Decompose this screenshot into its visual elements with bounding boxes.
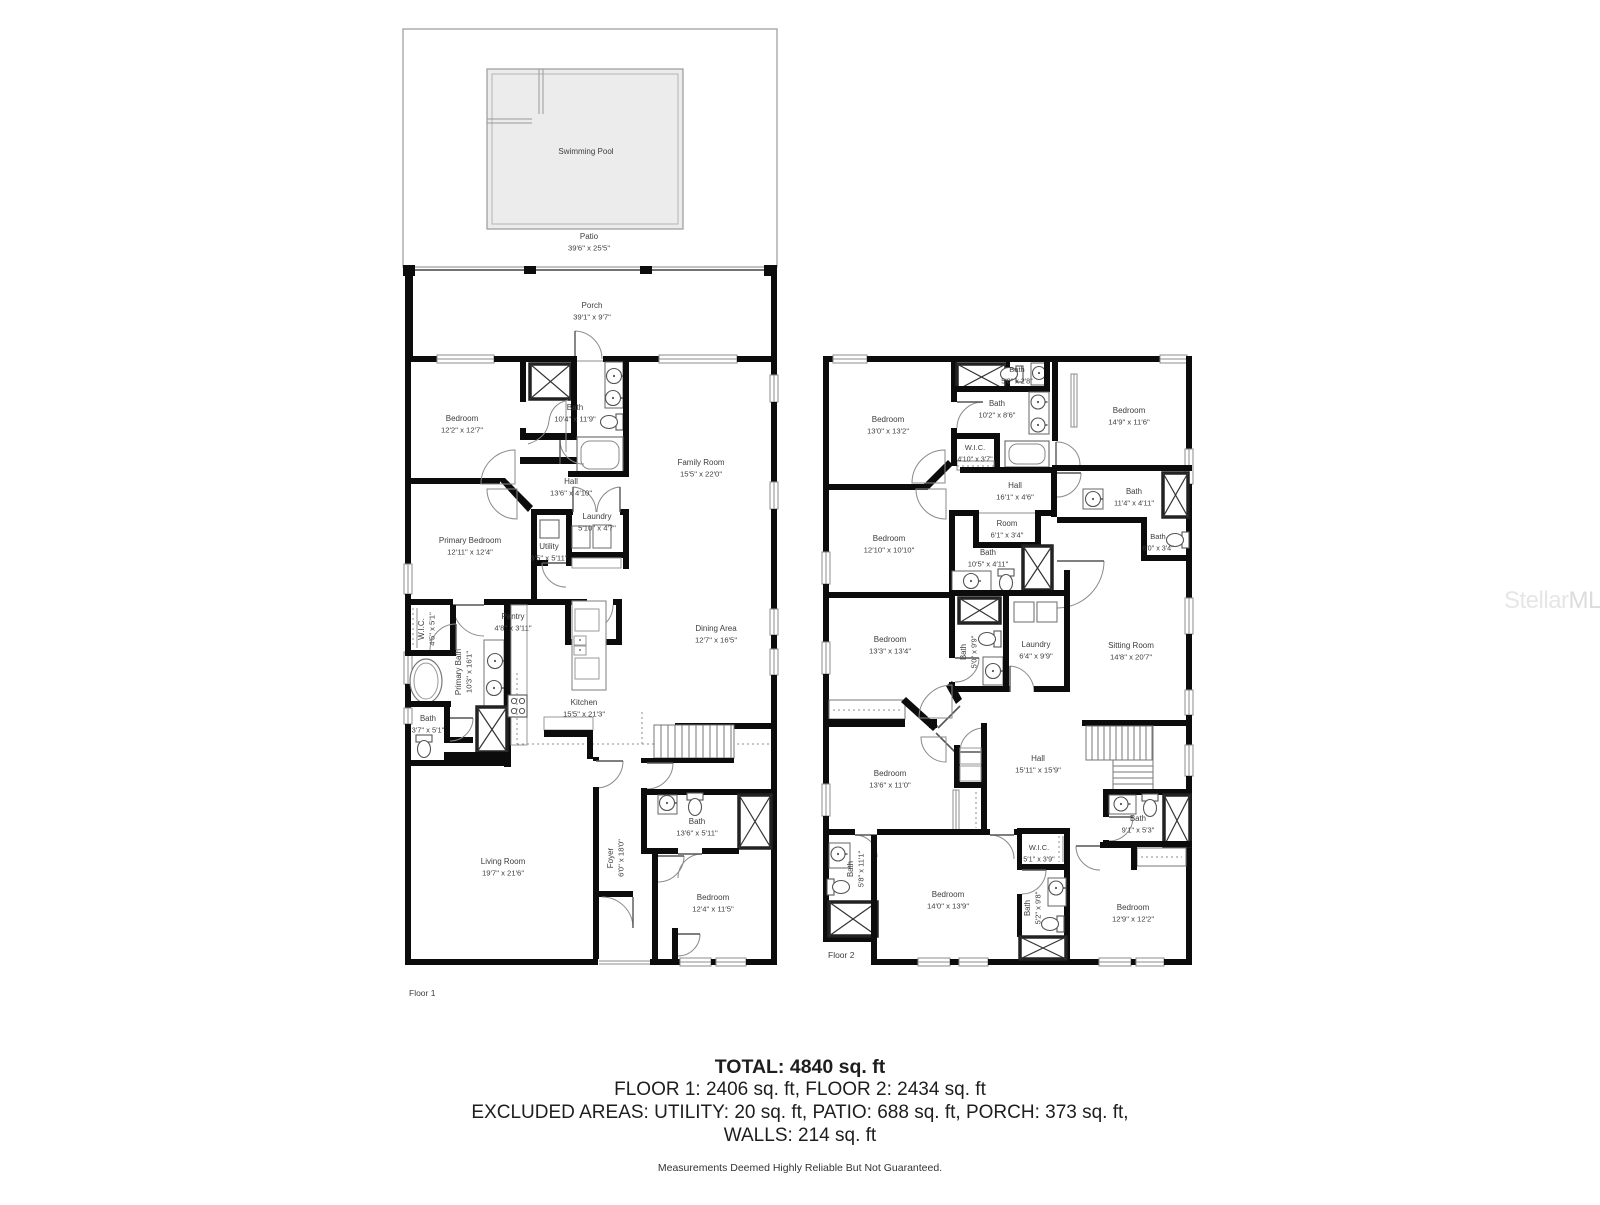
- svg-text:Floor 1: Floor 1: [409, 988, 436, 998]
- svg-text:Laundry: Laundry: [1022, 640, 1051, 649]
- svg-text:39′1" x 9′7": 39′1" x 9′7": [573, 313, 611, 322]
- svg-text:Bath: Bath: [846, 861, 855, 877]
- svg-text:Bedroom: Bedroom: [1117, 903, 1150, 912]
- svg-text:Family Room: Family Room: [677, 458, 724, 467]
- svg-text:Bath: Bath: [1130, 814, 1146, 823]
- svg-text:Patio: Patio: [580, 232, 599, 241]
- svg-text:Bath: Bath: [1023, 900, 1032, 916]
- svg-text:Utility: Utility: [539, 542, 559, 551]
- svg-text:W.I.C.: W.I.C.: [417, 618, 426, 640]
- svg-text:5′8" x 11′1": 5′8" x 11′1": [857, 850, 866, 887]
- svg-text:Hall: Hall: [564, 477, 578, 486]
- svg-text:Primary Bath: Primary Bath: [454, 649, 463, 695]
- svg-text:6′4" x 9′9": 6′4" x 9′9": [1019, 652, 1053, 661]
- svg-text:Bedroom: Bedroom: [874, 635, 907, 644]
- svg-text:Pantry: Pantry: [501, 612, 524, 621]
- svg-text:16′1" x 4′6": 16′1" x 4′6": [996, 493, 1034, 502]
- svg-text:10′4" x 11′9": 10′4" x 11′9": [554, 415, 596, 424]
- svg-text:Bath: Bath: [567, 403, 583, 412]
- svg-text:W.I.C.: W.I.C.: [1029, 843, 1049, 852]
- svg-text:Bedroom: Bedroom: [697, 893, 730, 902]
- svg-text:13′6" x 11′0": 13′6" x 11′0": [869, 781, 911, 790]
- svg-text:StellarMLS: StellarMLS: [1504, 587, 1600, 614]
- svg-text:EXCLUDED AREAS: UTILITY: 20 sq: EXCLUDED AREAS: UTILITY: 20 sq. ft, PATI…: [471, 1102, 1128, 1123]
- svg-text:Primary Bedroom: Primary Bedroom: [439, 536, 502, 545]
- svg-text:10′5" x 4′11": 10′5" x 4′11": [968, 560, 1009, 569]
- svg-text:6′0" x 18′0": 6′0" x 18′0": [617, 839, 626, 877]
- svg-text:4′5" x 5′1": 4′5" x 5′1": [428, 612, 437, 646]
- svg-text:Living Room: Living Room: [481, 857, 526, 866]
- svg-text:Bedroom: Bedroom: [874, 769, 907, 778]
- svg-text:Kitchen: Kitchen: [571, 698, 598, 707]
- svg-text:Floor 2: Floor 2: [828, 950, 855, 960]
- svg-text:Bedroom: Bedroom: [932, 890, 965, 899]
- svg-text:Laundry: Laundry: [583, 512, 612, 521]
- svg-text:Swimming Pool: Swimming Pool: [558, 147, 613, 156]
- svg-text:9′1" x 5′3": 9′1" x 5′3": [1122, 826, 1155, 835]
- svg-text:15′5" x 21′3": 15′5" x 21′3": [563, 710, 605, 719]
- svg-text:FLOOR 1: 2406 sq. ft, FLOOR 2:: FLOOR 1: 2406 sq. ft, FLOOR 2: 2434 sq. …: [614, 1079, 986, 1100]
- svg-text:5′1" x 3′9": 5′1" x 3′9": [1023, 855, 1055, 864]
- svg-text:Bath: Bath: [1009, 365, 1024, 374]
- svg-text:11′4" x 4′11": 11′4" x 4′11": [1114, 499, 1154, 508]
- svg-text:12′9" x 12′2": 12′9" x 12′2": [1112, 915, 1154, 924]
- svg-text:4′10" x 3′7": 4′10" x 3′7": [957, 455, 993, 464]
- svg-text:13′3" x 13′4": 13′3" x 13′4": [869, 647, 911, 656]
- svg-text:Dining Area: Dining Area: [695, 624, 737, 633]
- svg-text:13′6" x 4′10": 13′6" x 4′10": [550, 489, 592, 498]
- svg-text:14′0" x 13′9": 14′0" x 13′9": [927, 902, 969, 911]
- svg-text:13′0" x 13′2": 13′0" x 13′2": [867, 427, 909, 436]
- svg-text:10′2" x 8′6": 10′2" x 8′6": [979, 411, 1016, 420]
- svg-text:Bath: Bath: [1150, 532, 1165, 541]
- svg-text:12′11" x 12′4": 12′11" x 12′4": [447, 548, 493, 557]
- svg-text:Porch: Porch: [582, 301, 603, 310]
- svg-text:Foyer: Foyer: [606, 847, 615, 868]
- svg-text:Bath: Bath: [689, 817, 705, 826]
- svg-text:12′10" x 10′10": 12′10" x 10′10": [864, 546, 915, 555]
- svg-text:15′5" x 22′0": 15′5" x 22′0": [680, 470, 722, 479]
- svg-text:10′3" x 16′1": 10′3" x 16′1": [465, 651, 474, 693]
- svg-text:5′0" x 2′8": 5′0" x 2′8": [1001, 377, 1033, 386]
- svg-text:19′7" x 21′6": 19′7" x 21′6": [482, 869, 524, 878]
- svg-text:12′4" x 11′5": 12′4" x 11′5": [692, 905, 734, 914]
- svg-text:15′11" x 15′9": 15′11" x 15′9": [1015, 766, 1061, 775]
- svg-text:Bedroom: Bedroom: [872, 415, 905, 424]
- svg-text:12′2" x 12′7": 12′2" x 12′7": [441, 426, 483, 435]
- svg-text:Bedroom: Bedroom: [873, 534, 906, 543]
- svg-text:14′8" x 20′7": 14′8" x 20′7": [1110, 653, 1152, 662]
- svg-text:5′2" x 9′8": 5′2" x 9′8": [1034, 891, 1043, 924]
- svg-text:4′8" x 3′11": 4′8" x 3′11": [494, 624, 532, 633]
- svg-text:TOTAL: 4840 sq. ft: TOTAL: 4840 sq. ft: [715, 1056, 886, 1078]
- svg-text:6′0" x 3′4": 6′0" x 3′4": [1142, 544, 1174, 553]
- svg-text:3′5" x 5′11": 3′5" x 5′11": [530, 554, 568, 563]
- svg-text:Bath: Bath: [989, 399, 1005, 408]
- svg-text:3′7" x 5′1": 3′7" x 5′1": [412, 726, 445, 735]
- svg-text:5′0" x 9′9": 5′0" x 9′9": [970, 635, 979, 668]
- svg-text:Bedroom: Bedroom: [1113, 406, 1146, 415]
- svg-text:Measurements Deemed Highly Rel: Measurements Deemed Highly Reliable But …: [658, 1162, 942, 1174]
- svg-text:Bath: Bath: [1126, 487, 1142, 496]
- svg-text:Bedroom: Bedroom: [446, 414, 479, 423]
- svg-text:39′6" x 25′5": 39′6" x 25′5": [568, 244, 610, 253]
- svg-text:Bath: Bath: [980, 548, 996, 557]
- svg-text:W.I.C.: W.I.C.: [965, 443, 985, 452]
- svg-text:Sitting Room: Sitting Room: [1108, 641, 1154, 650]
- svg-text:Hall: Hall: [1031, 754, 1045, 763]
- svg-text:13′6" x 5′11": 13′6" x 5′11": [676, 829, 718, 838]
- svg-text:Bath: Bath: [420, 714, 436, 723]
- svg-text:14′9" x 11′6": 14′9" x 11′6": [1108, 418, 1150, 427]
- svg-text:WALLS: 214 sq. ft: WALLS: 214 sq. ft: [724, 1125, 877, 1146]
- svg-text:6′1" x 3′4": 6′1" x 3′4": [991, 531, 1024, 540]
- svg-text:12′7" x 16′5": 12′7" x 16′5": [695, 636, 737, 645]
- svg-text:Room: Room: [997, 519, 1018, 528]
- svg-text:Hall: Hall: [1008, 481, 1022, 490]
- svg-text:5′10" x 4′7": 5′10" x 4′7": [578, 524, 616, 533]
